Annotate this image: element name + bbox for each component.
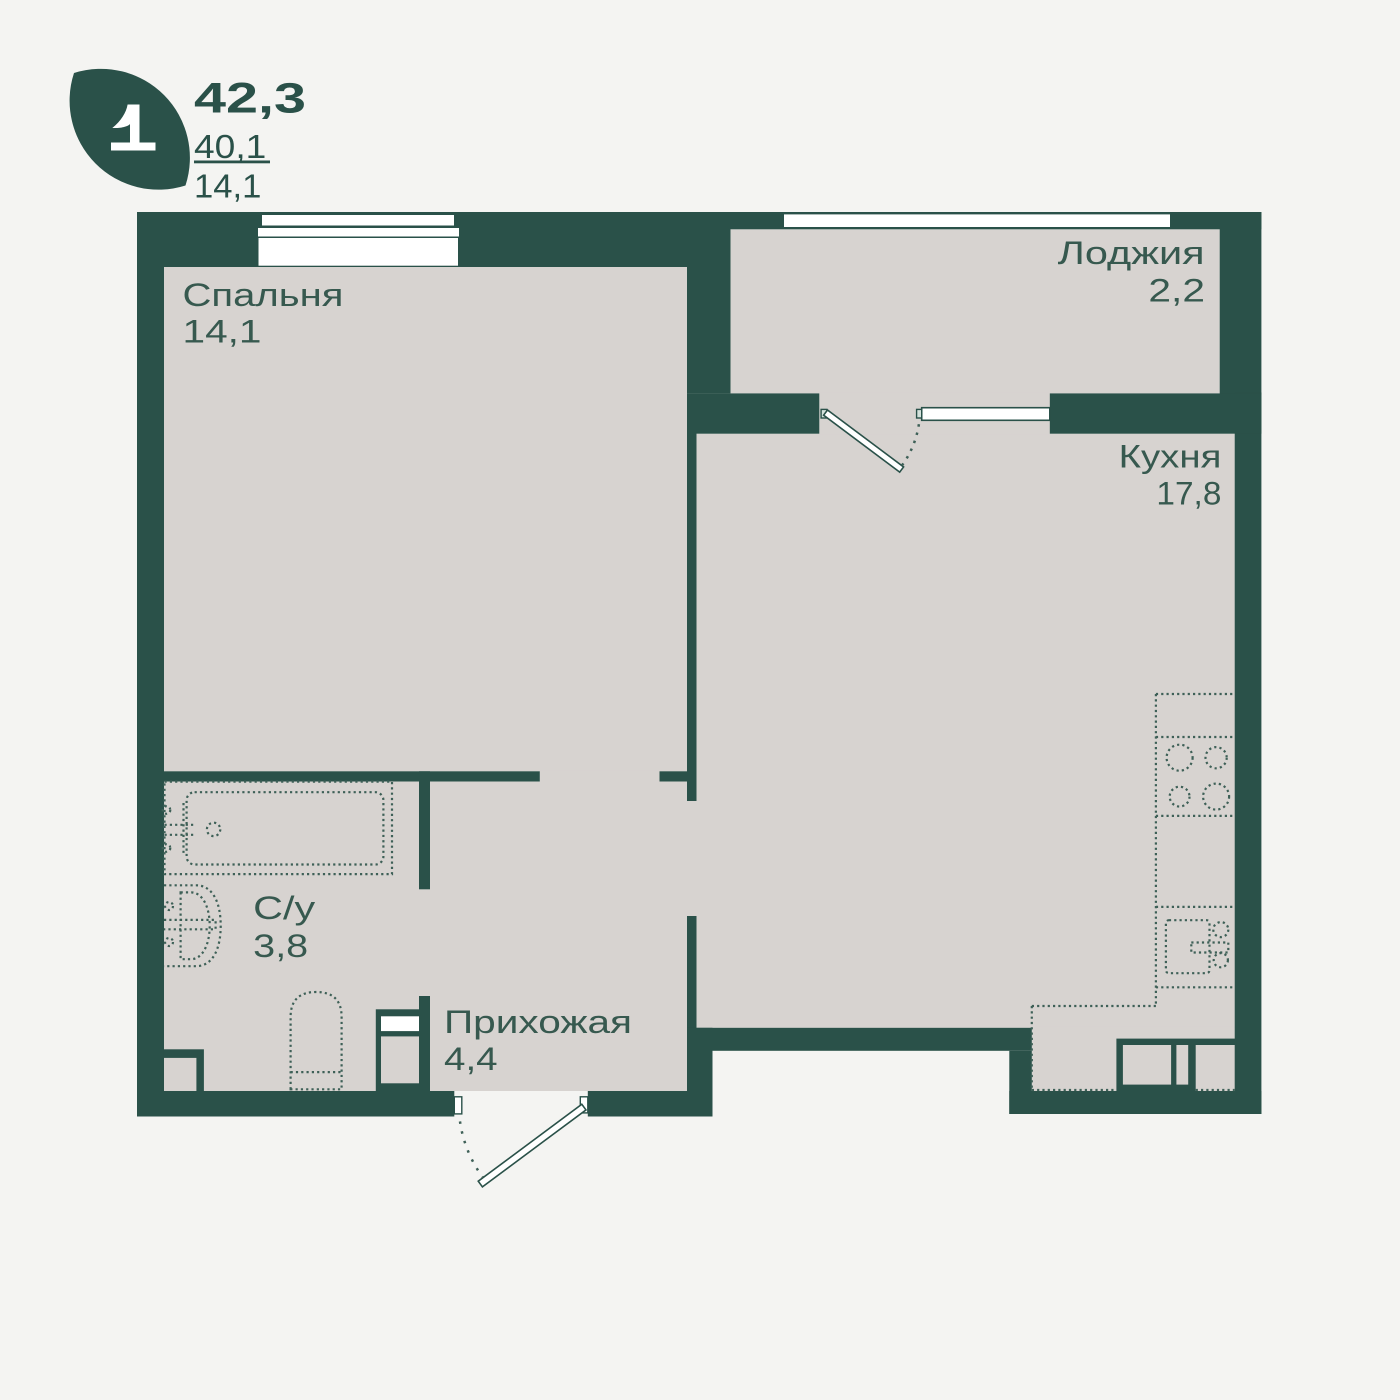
svg-text:4,4: 4,4 [444, 1041, 498, 1077]
svg-text:3,8: 3,8 [253, 928, 308, 964]
svg-text:14,1: 14,1 [183, 314, 262, 350]
svg-text:Кухня: Кухня [1119, 438, 1222, 474]
svg-text:Спальня: Спальня [183, 277, 344, 313]
svg-text:Прихожая: Прихожая [444, 1004, 632, 1040]
svg-text:17,8: 17,8 [1156, 475, 1221, 511]
svg-text:Лоджия: Лоджия [1058, 235, 1205, 271]
svg-text:40,1: 40,1 [194, 128, 266, 165]
svg-text:2,2: 2,2 [1148, 272, 1205, 308]
svg-text:14,1: 14,1 [194, 168, 261, 205]
svg-text:42,3: 42,3 [194, 75, 306, 123]
svg-text:С/у: С/у [253, 890, 315, 926]
